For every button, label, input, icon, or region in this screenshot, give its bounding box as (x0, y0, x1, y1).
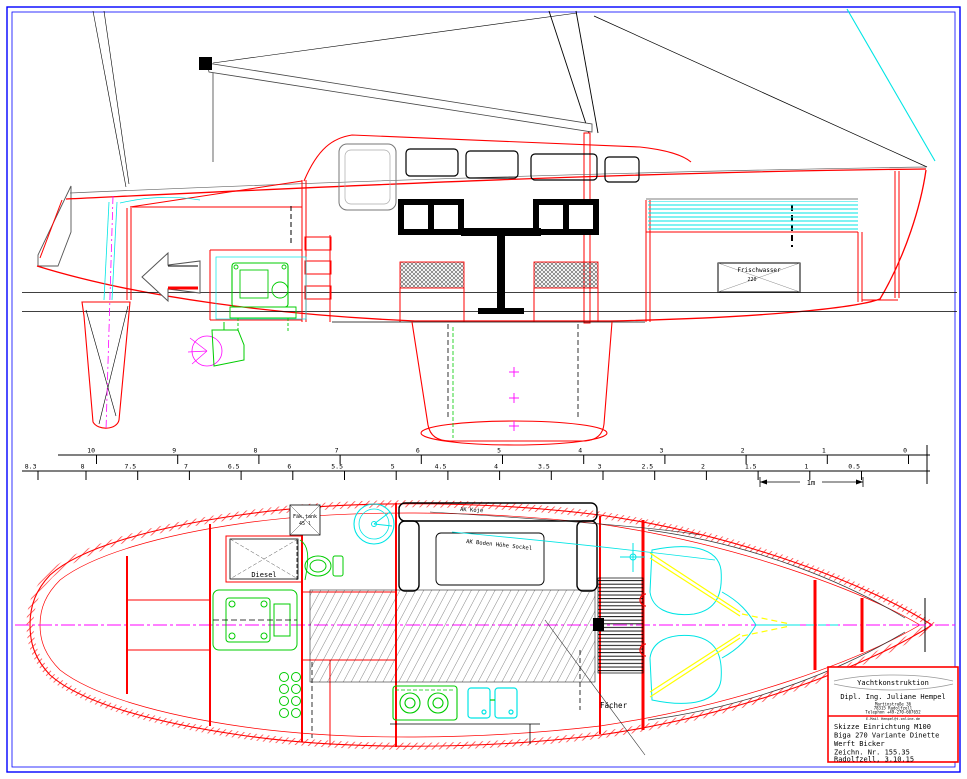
plan-view: Fäk.tank 45 l Diesel (15, 503, 958, 755)
freshwater-label: Frischwasser (737, 267, 781, 274)
boom-end-fitting (199, 57, 212, 70)
address-line-3: Telephon +49-270-607652 (865, 710, 921, 715)
ruler-label: 0 (903, 447, 907, 455)
ruler-label: 5 (391, 463, 395, 471)
ruler-label: 8 (253, 447, 257, 455)
holding-tank-label: Fäk.tank (293, 514, 317, 520)
ruler-label: 3 (598, 463, 602, 471)
rigging-lines (93, 9, 935, 187)
ruler-label: 1 (822, 447, 826, 455)
freshwater-tank: Frischwasser 220 (718, 263, 800, 292)
anchor-cross (620, 543, 645, 572)
faecher-label: Fächer (600, 701, 628, 710)
ruler-label: 6.5 (228, 463, 240, 471)
email-line: E-Mail Hempel@t-online.de (866, 717, 920, 721)
ruler-label: 5.5 (331, 463, 343, 471)
project-line-5: Radolfzell, 3.10.15 (834, 756, 914, 764)
ruler-label: 5 (497, 447, 501, 455)
coachroof (304, 135, 691, 181)
yacht-drawing: Frischwasser 220 (0, 0, 967, 779)
ruler-label: 7 (335, 447, 339, 455)
engine-profile (216, 257, 306, 332)
ruler-label: 8.3 (25, 463, 37, 471)
mast-step (593, 618, 604, 631)
designer-name: Dipl. Ing. Juliane Hempel (840, 693, 945, 701)
stove (393, 686, 457, 720)
boom (199, 57, 592, 132)
sink (468, 688, 517, 718)
ruler-label: 4 (494, 463, 498, 471)
transom (38, 186, 71, 266)
project-line-3: Werft Bicker (834, 740, 885, 748)
ak-koje-label: AK Koje (460, 507, 483, 514)
project-line-2: Biga 270 Variante Dinette (834, 732, 939, 740)
vberth-slats-plan (598, 578, 646, 673)
vberth-slats-profile (646, 199, 858, 231)
cabin-windows (406, 149, 639, 182)
ruler-label: 6 (287, 463, 291, 471)
ruler-label: 7.5 (124, 463, 136, 471)
profile-view: Frischwasser 220 (22, 9, 957, 445)
companionway-hatch (339, 144, 396, 210)
cad-sheet: Frischwasser 220 (0, 0, 967, 779)
ruler-label: 8 (81, 463, 85, 471)
washbasin (354, 504, 394, 544)
ruler-label: 3.5 (538, 463, 550, 471)
sheer-line (66, 169, 926, 199)
ruler-label: 9 (172, 447, 176, 455)
one-meter-label: 1m (807, 479, 815, 487)
ruler-label: 10 (87, 447, 95, 455)
ruler-label: 4.5 (435, 463, 447, 471)
one-meter-dimension: 1m (760, 477, 863, 487)
ruler-label: 7 (184, 463, 188, 471)
saloon-table (461, 228, 541, 314)
ruler-labels: 1098765432108.387.576.565.554.543.532.52… (25, 447, 909, 481)
ruler-label: 3 (659, 447, 663, 455)
rudder (82, 196, 200, 430)
ruler-label: 4 (578, 447, 582, 455)
ruler-label: 1 (804, 463, 808, 471)
profile-interior (127, 171, 899, 322)
ruler-label: 6 (416, 447, 420, 455)
floorboards (310, 590, 595, 682)
ruler-label: 0.5 (848, 463, 860, 471)
bottle-rack (280, 673, 301, 718)
ruler-label: 1.5 (745, 463, 757, 471)
forestay-cyan (847, 9, 935, 161)
toilet (305, 556, 343, 576)
title-block: Yachtkonstruktion Dipl. Ing. Juliane Hem… (828, 667, 958, 764)
holding-tank-box: Fäk.tank 45 l (290, 505, 320, 535)
keel (412, 322, 612, 445)
diesel-label: Diesel (251, 571, 276, 579)
engine-plan (213, 590, 297, 650)
ruler-label: 2.5 (641, 463, 653, 471)
project-line-1: Skizze Einrichtung M100 (834, 723, 931, 731)
ruler-label: 2 (701, 463, 705, 471)
freshwater-volume: 220 (747, 277, 756, 283)
ak-boden-label: AK Boden Höhe Sockel (466, 539, 532, 552)
ruler-label: 2 (741, 447, 745, 455)
diesel-tank-box: Diesel (226, 536, 308, 582)
holding-tank-volume: 45 l (299, 521, 311, 527)
rulers: 1098765432108.387.576.565.554.543.532.52… (22, 445, 930, 487)
propeller (188, 322, 244, 366)
company-name: Yachtkonstruktion (857, 679, 929, 687)
